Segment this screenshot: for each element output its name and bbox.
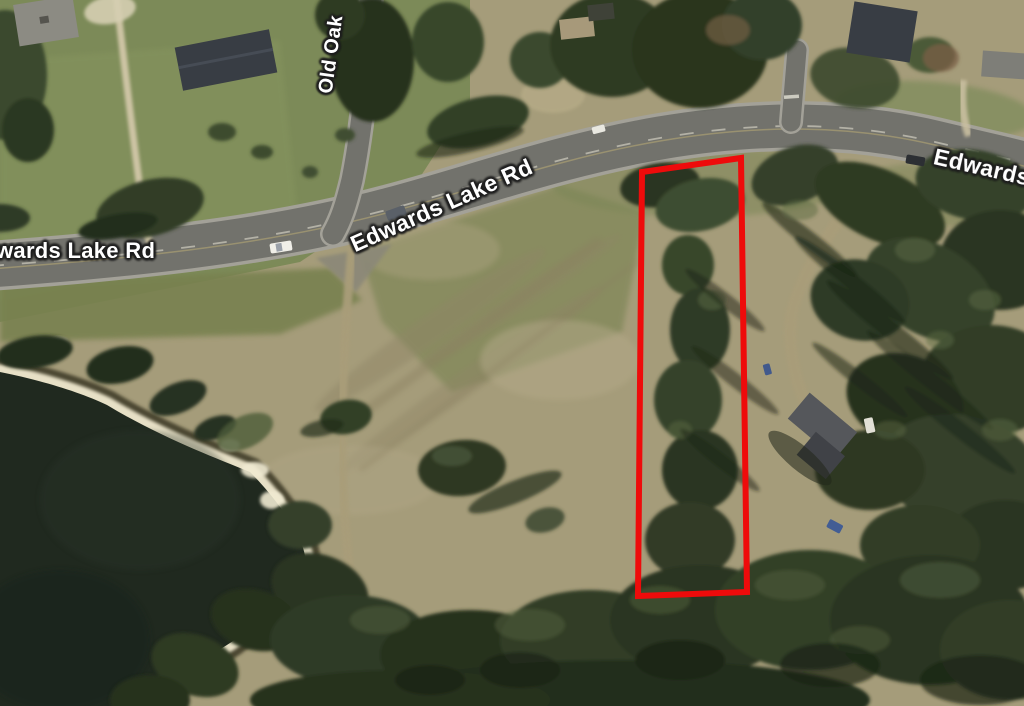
aerial-imagery <box>0 0 1024 706</box>
house-roof <box>981 50 1024 79</box>
side-street <box>791 50 797 122</box>
house-roof <box>846 1 917 62</box>
satellite-map[interactable]: Edwards Lake Rd wards Lake Rd Edwards Ol… <box>0 0 1024 706</box>
